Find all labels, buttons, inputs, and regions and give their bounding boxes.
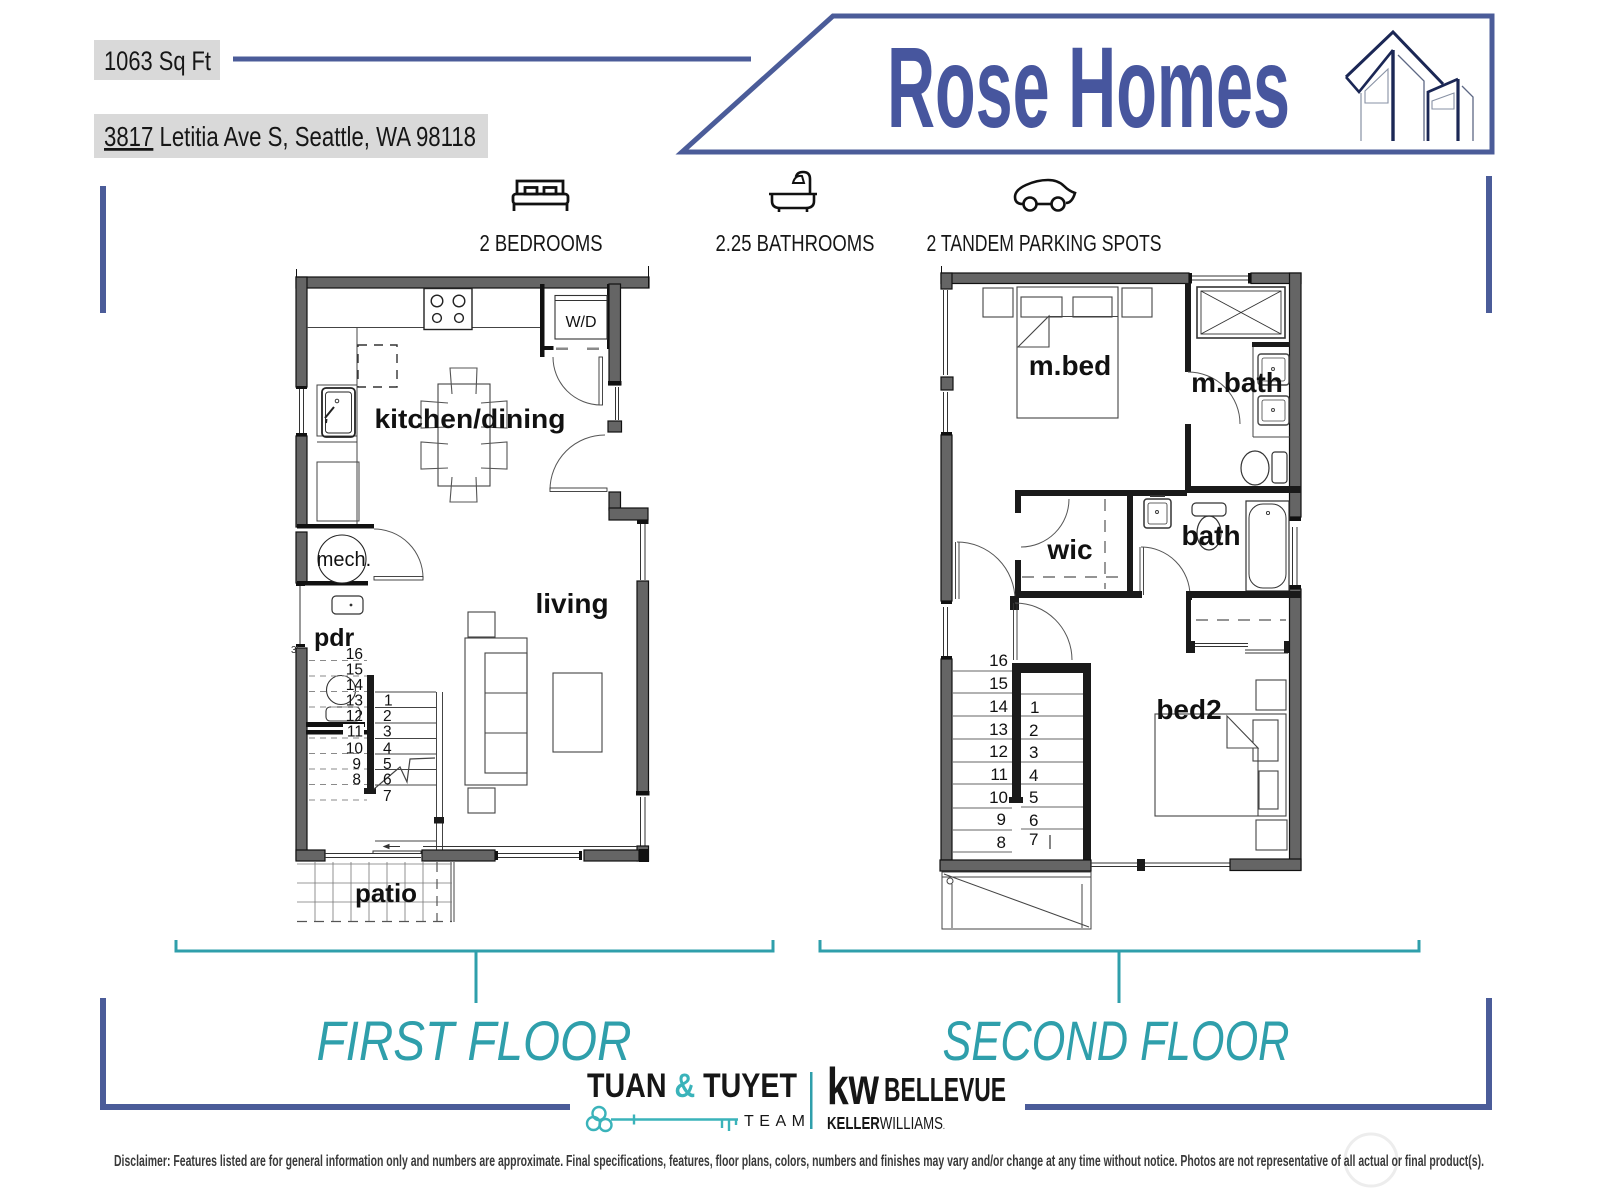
svg-text:KELLERWILLIAMS.: KELLERWILLIAMS.: [827, 1113, 945, 1133]
svg-text:kw: kw: [827, 1058, 879, 1116]
svg-text:11: 11: [347, 724, 363, 741]
svg-text:3: 3: [383, 724, 392, 741]
svg-text:6: 6: [1029, 811, 1038, 830]
svg-text:1: 1: [384, 693, 393, 710]
svg-text:12: 12: [346, 708, 363, 725]
svg-text:2: 2: [383, 708, 392, 725]
svg-text:5: 5: [383, 756, 392, 773]
svg-text:2 TANDEM PARKING SPOTS: 2 TANDEM PARKING SPOTS: [927, 230, 1162, 256]
svg-text:W/D: W/D: [565, 314, 596, 331]
svg-text:TEAM: TEAM: [744, 1113, 810, 1130]
svg-text:4: 4: [383, 741, 392, 758]
svg-text:bed2: bed2: [1156, 694, 1221, 725]
svg-text:2.25 BATHROOMS: 2.25 BATHROOMS: [716, 230, 875, 256]
svg-text:7: 7: [1029, 830, 1038, 849]
svg-text:1: 1: [1030, 698, 1039, 717]
svg-text:6: 6: [383, 772, 392, 789]
svg-text:15: 15: [989, 674, 1008, 693]
svg-text:Rose Homes: Rose Homes: [887, 24, 1290, 152]
svg-text:7: 7: [383, 788, 392, 805]
svg-text:Disclaimer: Features listed ar: Disclaimer: Features listed are for gene…: [114, 1153, 1484, 1170]
svg-text:9: 9: [352, 756, 361, 773]
svg-text:11: 11: [990, 765, 1008, 784]
svg-text:14: 14: [989, 697, 1008, 716]
svg-text:16: 16: [989, 651, 1008, 670]
svg-text:9: 9: [997, 810, 1006, 829]
svg-text:3': 3': [291, 645, 299, 656]
svg-text:13: 13: [346, 693, 363, 710]
svg-text:m.bed: m.bed: [1029, 350, 1111, 381]
svg-text:m.bath: m.bath: [1191, 367, 1283, 398]
svg-text:mech.: mech.: [317, 549, 371, 571]
svg-text:13: 13: [989, 720, 1008, 739]
svg-text:8: 8: [997, 833, 1006, 852]
svg-text:4: 4: [1029, 766, 1038, 785]
svg-text:patio: patio: [355, 878, 417, 908]
svg-text:12: 12: [989, 742, 1008, 761]
svg-text:2: 2: [1029, 721, 1038, 740]
svg-text:5: 5: [1029, 788, 1038, 807]
svg-text:16: 16: [346, 646, 363, 663]
svg-text:1063 Sq Ft: 1063 Sq Ft: [104, 46, 211, 76]
svg-text:8: 8: [352, 772, 361, 789]
svg-text:bath: bath: [1181, 520, 1240, 551]
svg-text:BELLEVUE: BELLEVUE: [884, 1071, 1006, 1108]
svg-text:15: 15: [346, 662, 363, 679]
svg-text:TUAN & TUYET: TUAN & TUYET: [587, 1067, 797, 1105]
svg-text:kitchen/dining: kitchen/dining: [375, 404, 566, 434]
svg-text:10: 10: [989, 788, 1008, 807]
svg-text:wic: wic: [1046, 534, 1092, 565]
svg-text:10: 10: [346, 741, 364, 758]
svg-text:living: living: [535, 588, 608, 619]
svg-text:14: 14: [346, 677, 364, 694]
svg-text:2 BEDROOMS: 2 BEDROOMS: [480, 230, 603, 256]
svg-text:3817 Letitia Ave S, Seattle, W: 3817 Letitia Ave S, Seattle, WA 98118: [104, 121, 476, 152]
svg-text:3: 3: [1029, 743, 1038, 762]
